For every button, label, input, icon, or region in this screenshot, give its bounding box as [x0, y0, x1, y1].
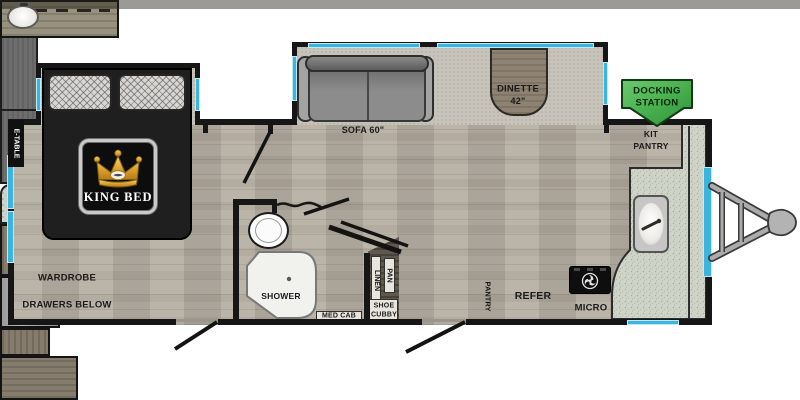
pantry-label: PANTRY	[484, 281, 493, 311]
drawer-handle	[99, 9, 110, 12]
sofa-seat	[308, 70, 426, 122]
bed-slide-window-left	[36, 78, 41, 111]
living-slide-window-left	[292, 56, 297, 101]
kit-pantry-cabinet	[0, 356, 78, 400]
docking-label-2: STATION	[635, 98, 678, 109]
e-table-tab: E-TABLE	[8, 120, 24, 167]
living-slide-window-right	[603, 62, 608, 105]
dinette-label: DINETTE	[497, 84, 539, 95]
vanity-faucet-icon	[20, 3, 28, 6]
docking-label-1: DOCKING	[633, 86, 681, 97]
shoe-label: SHOE	[374, 303, 395, 310]
sofa-label: SOFA 60"	[342, 125, 385, 135]
door-threshold-right	[422, 319, 466, 322]
crown-icon	[89, 148, 147, 190]
wall-bottom-2	[218, 319, 422, 325]
pan-label: PAN	[386, 268, 393, 282]
window-left-lower	[7, 211, 14, 263]
pan-label-wrap: PAN	[384, 258, 395, 293]
cubby-label: CUBBY	[371, 312, 397, 319]
vanity-wall	[364, 253, 370, 323]
toilet	[248, 212, 289, 249]
e-table-label: E-TABLE	[13, 129, 20, 159]
window-bottom-kitchen	[627, 320, 679, 325]
entry-door-swing-right	[406, 322, 465, 352]
drawer-handle	[77, 9, 91, 12]
drawer-handle	[56, 9, 68, 12]
bathroom-wall-top	[233, 199, 277, 205]
door-threshold-left	[176, 319, 218, 322]
refer-label: REFER	[515, 290, 552, 302]
front-baggage-door	[703, 167, 712, 277]
rv-floorplan: KING BED	[0, 0, 800, 400]
kitchen-wall-stub	[604, 125, 609, 133]
living-slide-window-top-sofa	[308, 43, 420, 48]
kit-pantry-label-1: KIT	[644, 129, 658, 139]
hitch-coupler	[768, 210, 796, 236]
pillow-right	[118, 74, 186, 111]
wall-top-mid	[196, 119, 296, 125]
wall-bottom-1	[8, 319, 176, 325]
kit-pantry-label-2: PANTRY	[633, 141, 668, 151]
bathroom-wall-stub	[272, 199, 277, 213]
stove	[569, 266, 611, 294]
med-cab-label: MED CAB	[322, 313, 356, 320]
linen-label-wrap: LINEN	[371, 256, 381, 304]
dinette-size-label: 42"	[511, 96, 526, 106]
trailer-hitch	[712, 186, 796, 258]
stove-burner-icon	[580, 271, 600, 291]
micro-label: MICRO	[575, 303, 608, 314]
king-bed-plaque: KING BED	[79, 139, 157, 214]
entry-door-swing-left	[175, 322, 217, 349]
bed-slide-window-right	[195, 78, 200, 111]
wall-top-right	[604, 119, 712, 125]
microwave-cabinet	[0, 328, 50, 356]
living-slide-window-top-dinette	[437, 43, 594, 48]
shower-label: SHOWER	[261, 291, 300, 301]
wall-stub-slide	[203, 125, 208, 133]
pillow-left	[48, 74, 112, 111]
wardrobe-label: WARDROBE	[38, 273, 96, 284]
bedroom-divider-wall	[268, 119, 273, 134]
bathroom-wall-left	[233, 199, 239, 325]
king-bed-label: KING BED	[84, 190, 153, 205]
vanity-sink	[7, 5, 39, 29]
pantry-label-wrap: PANTRY	[474, 270, 502, 322]
dinette-bench-left	[0, 38, 38, 111]
linen-label: LINEN	[373, 270, 380, 291]
sofa-backrest	[305, 55, 429, 72]
drawers-below-label: DRAWERS BELOW	[22, 300, 111, 311]
